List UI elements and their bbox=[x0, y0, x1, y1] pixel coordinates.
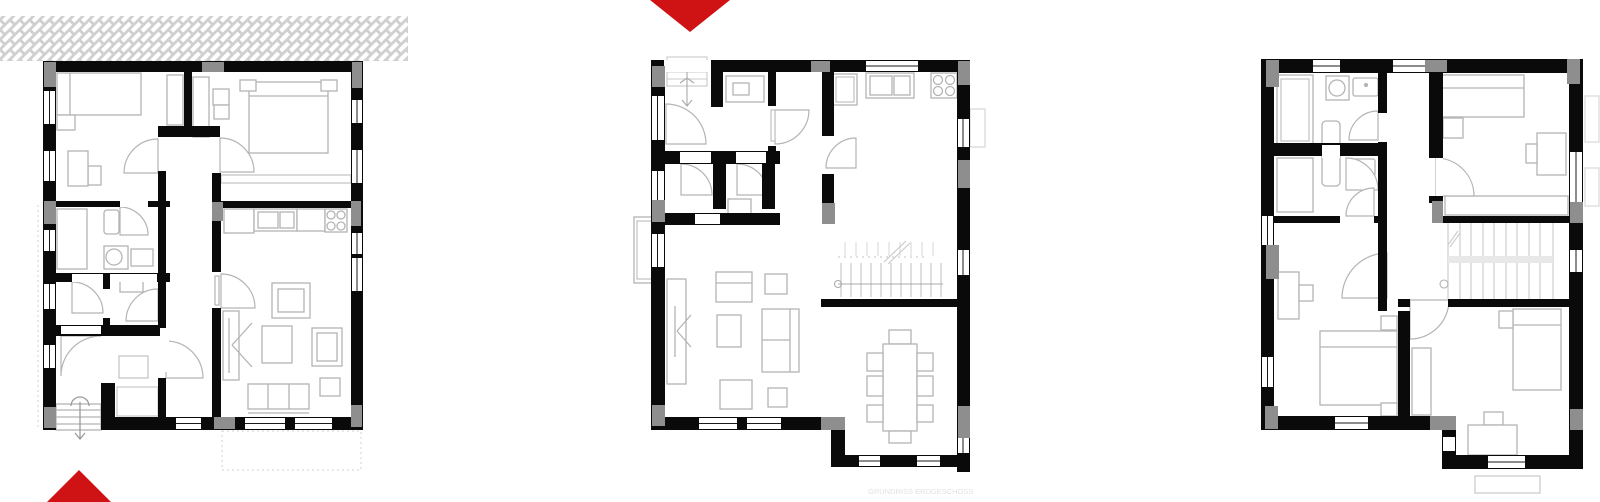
svg-text:GRUNDRISS ERDGESCHOSS: GRUNDRISS ERDGESCHOSS bbox=[868, 487, 973, 496]
